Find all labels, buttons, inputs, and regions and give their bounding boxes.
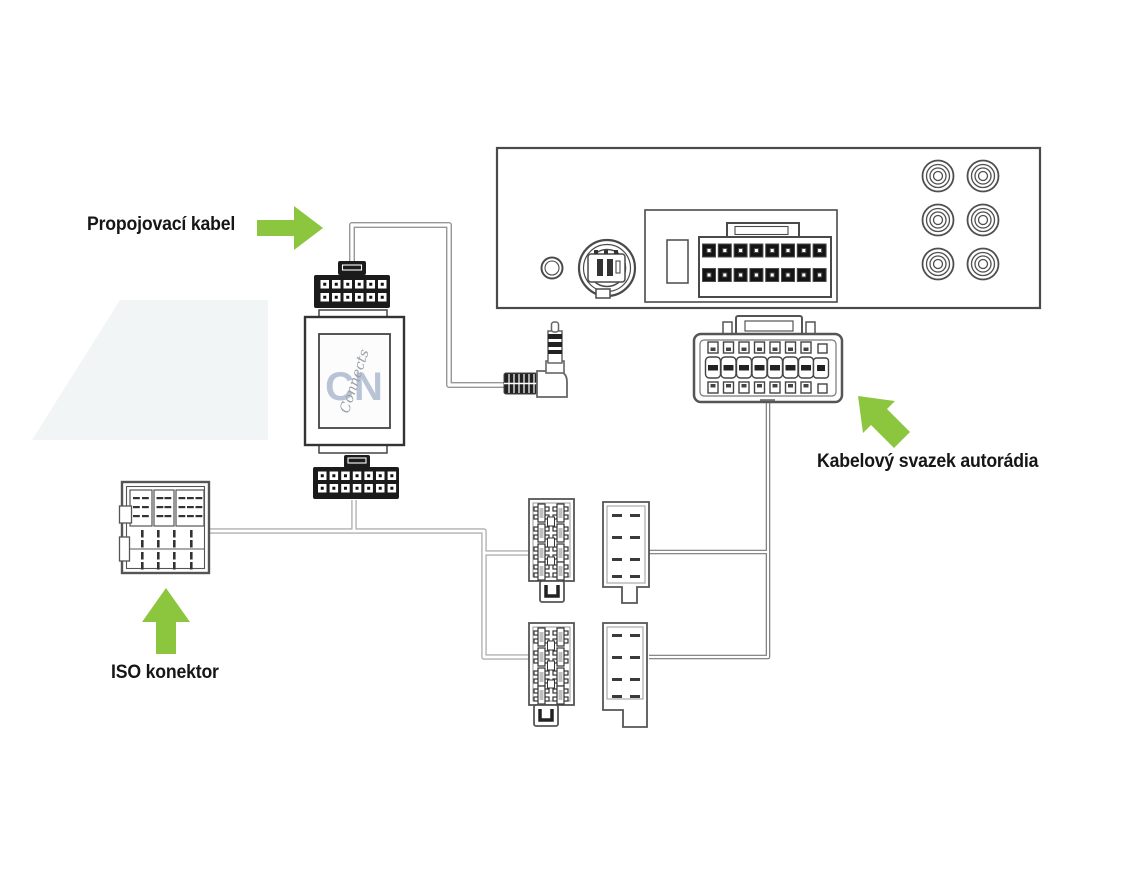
rca-jack xyxy=(968,161,999,192)
iso-wire-bus xyxy=(208,500,531,657)
radio-connector-panel xyxy=(645,210,837,302)
label-iso-konektor: ISO konektor xyxy=(111,662,219,684)
radio-slot xyxy=(667,240,688,283)
rca-jack xyxy=(968,249,999,280)
wiring-diagram: CN Connects xyxy=(0,0,1139,872)
male-plug-upper xyxy=(529,499,574,602)
plug-latch xyxy=(540,581,564,602)
antenna-connector xyxy=(579,240,635,298)
rca-jack xyxy=(968,205,999,236)
radio-rear-panel xyxy=(497,148,1040,308)
rca-jack xyxy=(923,161,954,192)
harness-wires xyxy=(649,401,768,657)
rca-jack xyxy=(923,205,954,236)
plug-latch xyxy=(534,705,558,726)
female-housing-upper xyxy=(603,502,649,603)
aux-jack-plug xyxy=(504,322,567,397)
iso-connector xyxy=(120,482,210,573)
adapter-top-connector-12pin xyxy=(314,261,390,308)
radio-screw-hole xyxy=(542,258,563,279)
background-watermark xyxy=(32,300,268,440)
rca-jack xyxy=(923,249,954,280)
label-propojovaci-kabel: Propojovací kabel xyxy=(87,214,235,236)
label-kabelovy-svazek-autoradia: Kabelový svazek autorádia xyxy=(817,451,1038,473)
female-housing-lower xyxy=(603,623,647,727)
wiring-diagram-page: CN Connects xyxy=(0,0,1139,872)
adapter-bottom-connector-14pin xyxy=(313,455,399,499)
arrow-right-propojovaci xyxy=(257,206,323,250)
arrow-diagonal-harness xyxy=(858,396,910,448)
adapter-box: CN Connects xyxy=(305,310,404,453)
arrow-up-iso xyxy=(142,588,190,654)
harness-connector xyxy=(694,316,842,402)
male-plug-lower xyxy=(529,623,574,726)
